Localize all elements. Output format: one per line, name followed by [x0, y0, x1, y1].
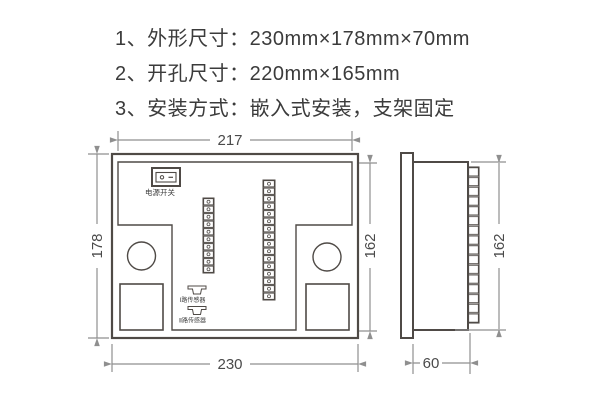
rear-view: 电源开关 Ⅰ路传感器 Ⅱ路传感器 217 — [88, 131, 379, 373]
sensor2-label: Ⅱ路传感器 — [179, 317, 206, 325]
side-view: 162 60 — [401, 153, 508, 374]
dim-inner-width-value: 217 — [217, 132, 242, 149]
dim-inner-height-value: 162 — [362, 233, 379, 258]
page: 1、外形尺寸：230mm×178mm×70mm 2、开孔尺寸：220mm×165… — [0, 0, 600, 400]
power-switch-label: 电源开关 — [145, 187, 175, 197]
sensor1-label: Ⅰ路传感器 — [180, 296, 206, 304]
dim-outer-height-value: 178 — [89, 233, 106, 258]
side-terminal-blocks — [468, 167, 479, 323]
rear-outer-outline — [112, 154, 358, 338]
terminal-strip-right — [263, 180, 275, 300]
terminal-strip-left — [203, 198, 214, 273]
side-front-flange — [401, 153, 413, 338]
dim-outer-width-value: 230 — [217, 356, 242, 373]
technical-drawing: 电源开关 Ⅰ路传感器 Ⅱ路传感器 217 — [0, 0, 600, 400]
side-body — [413, 162, 468, 330]
dim-side-depth-value: 60 — [423, 355, 440, 372]
power-switch — [152, 168, 180, 186]
dim-side-height-value: 162 — [491, 233, 508, 258]
